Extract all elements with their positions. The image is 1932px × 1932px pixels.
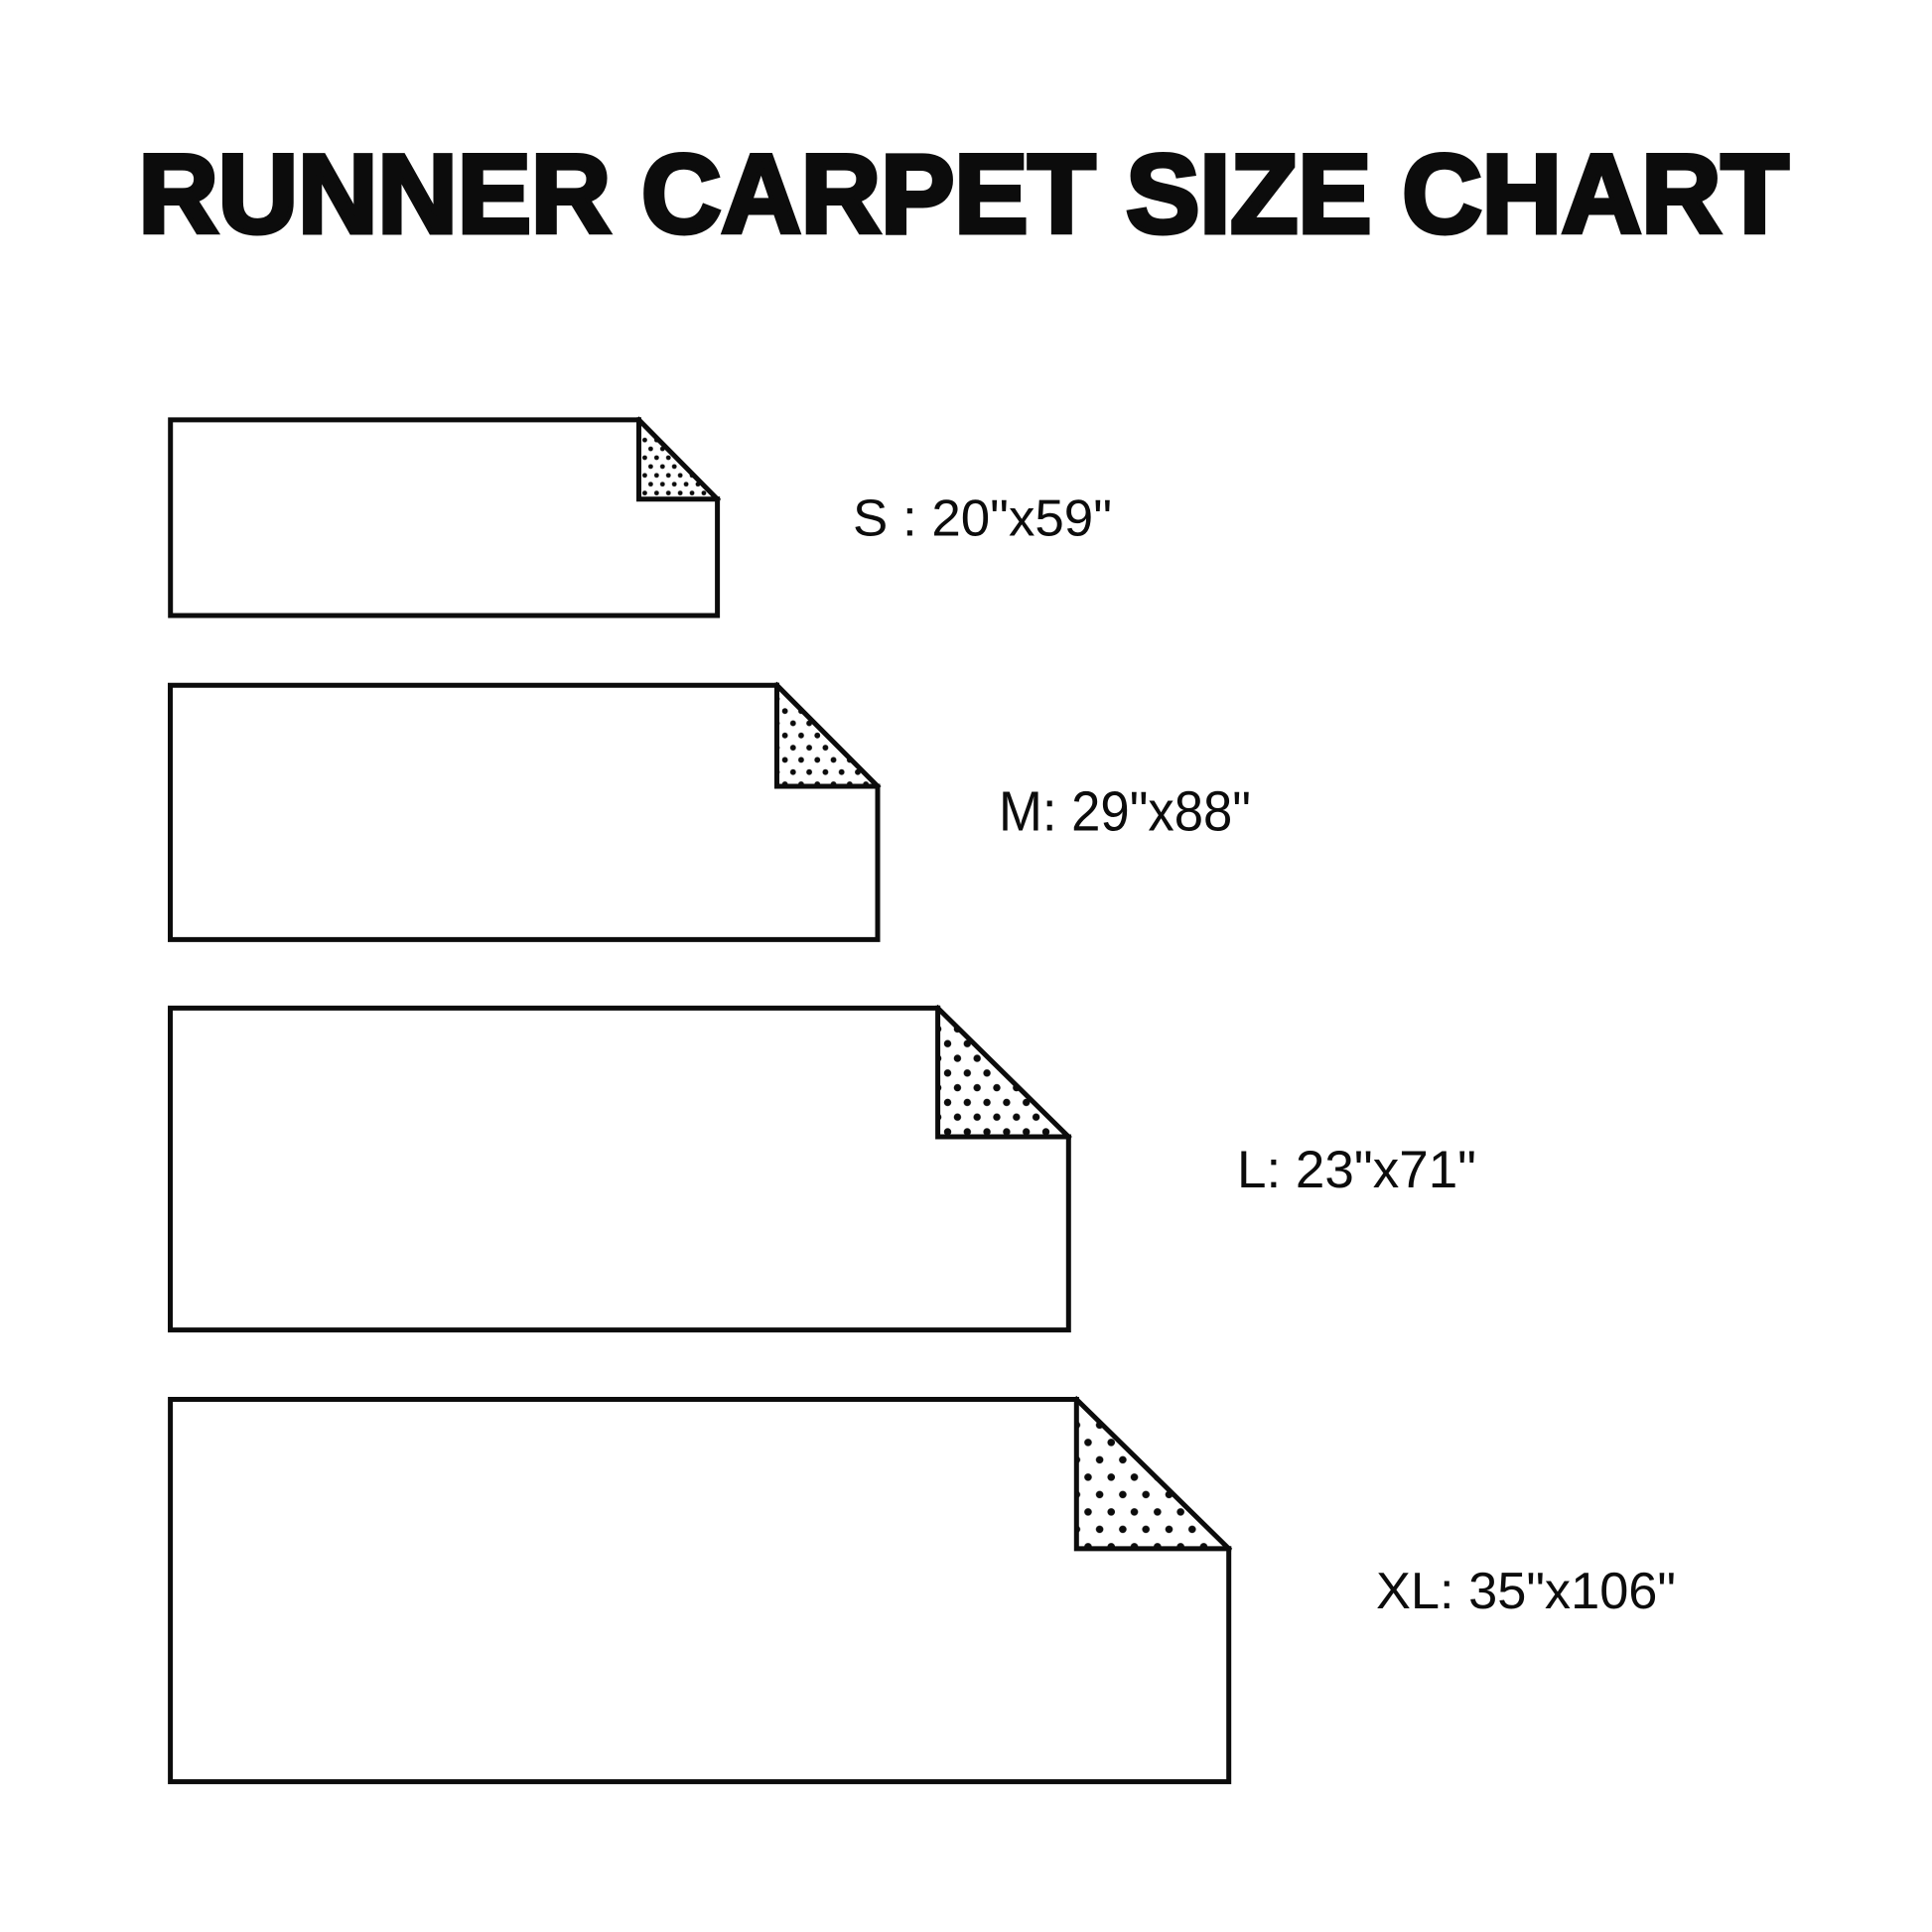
svg-text:M: 29"x88": M: 29"x88" <box>999 780 1251 844</box>
svg-text:S : 20"x59": S : 20"x59" <box>853 489 1112 547</box>
svg-text:XL: 35"x106": XL: 35"x106" <box>1376 1562 1676 1619</box>
svg-text:L: 23"x71": L: 23"x71" <box>1237 1141 1476 1199</box>
svg-text:RUNNER CARPET SIZE CHART: RUNNER CARPET SIZE CHART <box>139 131 1789 256</box>
